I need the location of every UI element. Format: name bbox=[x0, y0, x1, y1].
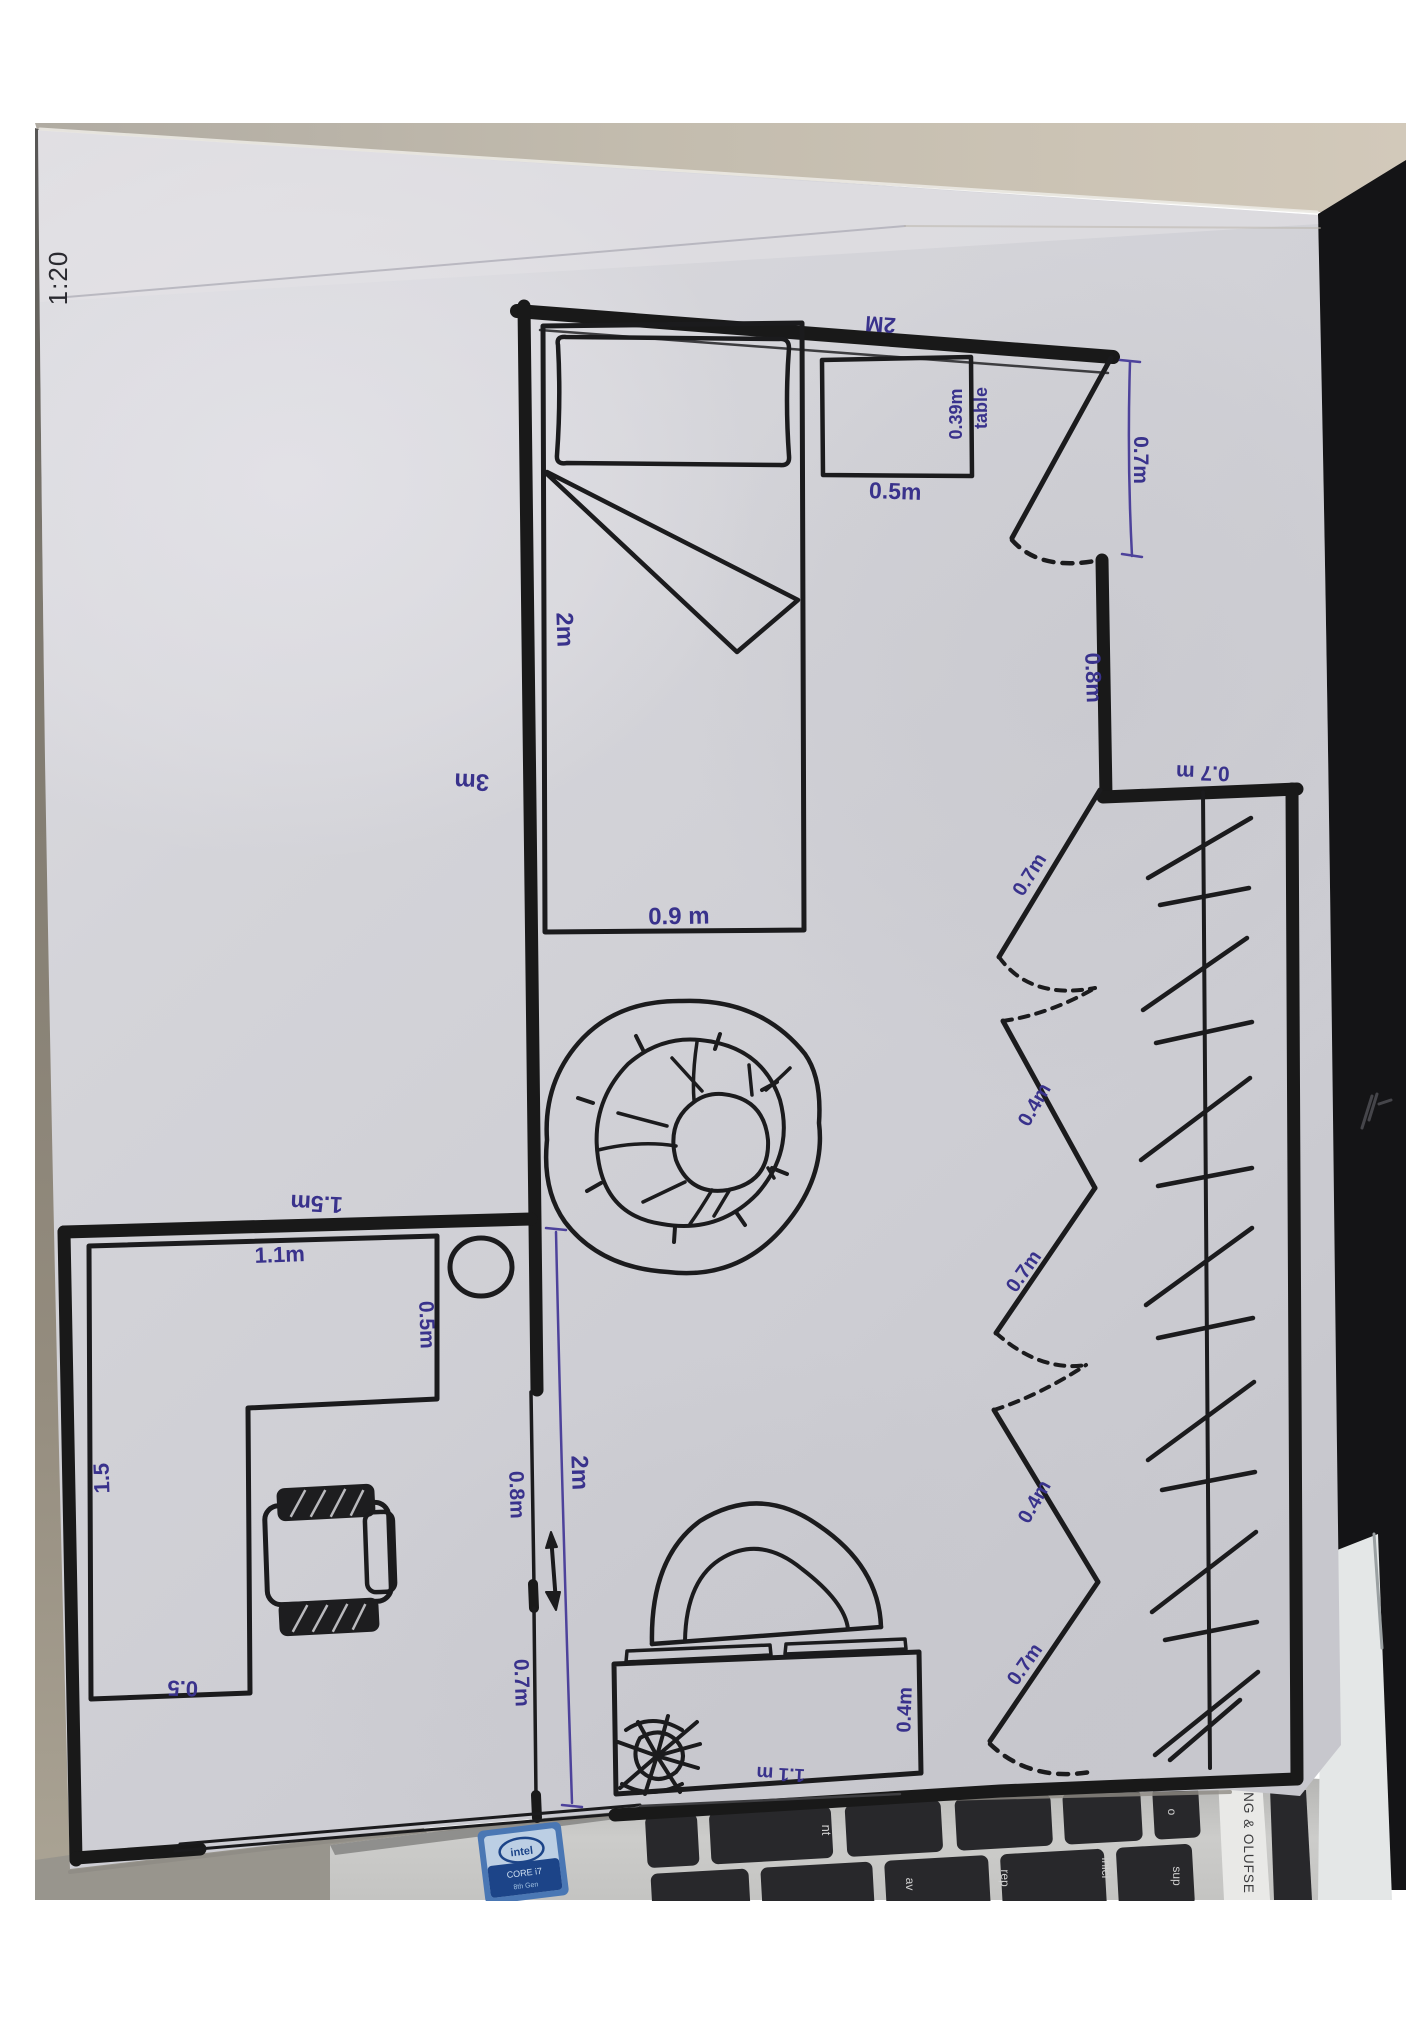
svg-text:inici: inici bbox=[1099, 1858, 1113, 1879]
svg-text:0.7 m: 0.7 m bbox=[1176, 760, 1230, 785]
svg-text:NG & OLUFSE: NG & OLUFSE bbox=[1241, 1792, 1256, 1894]
svg-text:0.5m: 0.5m bbox=[414, 1300, 439, 1349]
svg-text:1.1 m: 1.1 m bbox=[756, 1762, 806, 1786]
svg-text:0.8m: 0.8m bbox=[1080, 652, 1107, 703]
svg-text:0.9 m: 0.9 m bbox=[648, 902, 710, 930]
svg-text:rep: rep bbox=[998, 1869, 1012, 1887]
svg-text:0.7m: 0.7m bbox=[509, 1658, 534, 1707]
svg-text:nt: nt bbox=[819, 1825, 834, 1836]
svg-text:3m: 3m bbox=[454, 767, 490, 795]
svg-text:1.5: 1.5 bbox=[88, 1463, 114, 1494]
svg-text:1.1m: 1.1m bbox=[254, 1241, 305, 1268]
svg-text:2m: 2m bbox=[550, 612, 578, 648]
svg-text:0.8m: 0.8m bbox=[504, 1470, 529, 1519]
svg-text:o: o bbox=[1165, 1809, 1179, 1816]
svg-text:0.5m: 0.5m bbox=[869, 477, 922, 505]
svg-text:0.5: 0.5 bbox=[167, 1675, 198, 1701]
svg-text:1:20: 1:20 bbox=[43, 251, 73, 306]
svg-text:0.7m: 0.7m bbox=[1129, 436, 1152, 484]
svg-text:0.39m: 0.39m bbox=[946, 388, 966, 439]
svg-text:2M: 2M bbox=[864, 311, 896, 338]
svg-text:0.4m: 0.4m bbox=[893, 1687, 917, 1733]
svg-text:table: table bbox=[971, 387, 991, 429]
svg-text:1.5m: 1.5m bbox=[290, 1190, 344, 1219]
svg-text:av: av bbox=[903, 1878, 917, 1891]
svg-text:2m: 2m bbox=[565, 1455, 593, 1491]
svg-text:sup: sup bbox=[1170, 1866, 1184, 1886]
